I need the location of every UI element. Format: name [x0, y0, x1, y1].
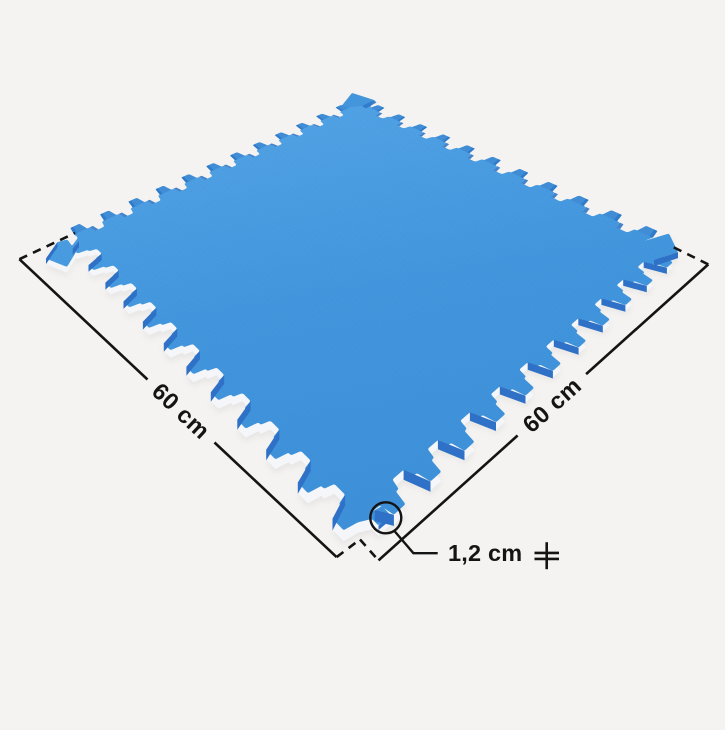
svg-text:60 cm: 60 cm [518, 372, 587, 438]
svg-text:1,2 cm: 1,2 cm [448, 540, 522, 566]
svg-text:60 cm: 60 cm [147, 378, 215, 444]
